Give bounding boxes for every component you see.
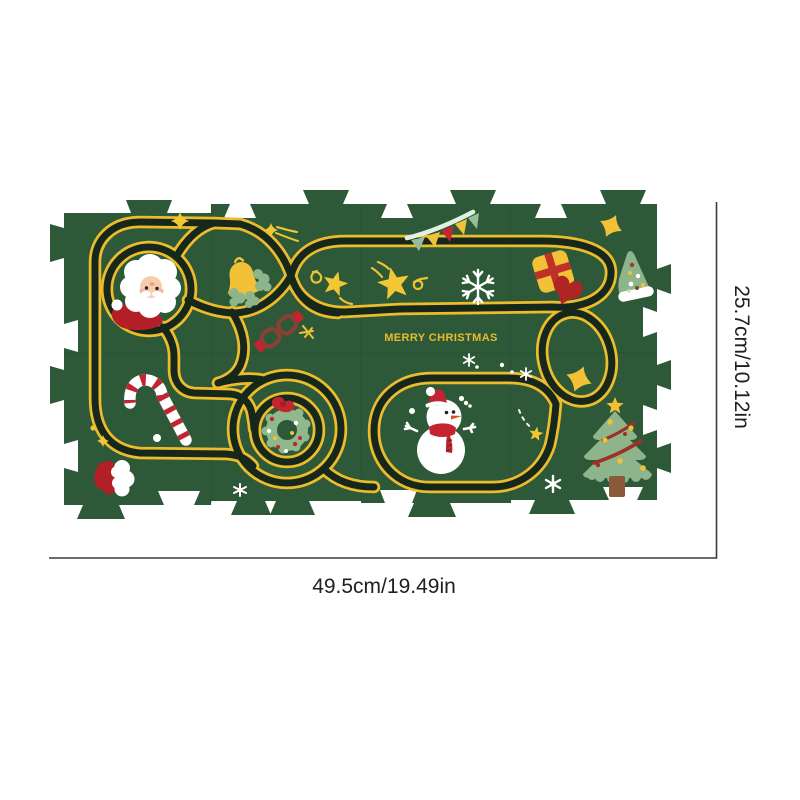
svg-text:25.7cm/10.12in: 25.7cm/10.12in <box>730 285 753 429</box>
svg-text:MERRY CHRISTMAS: MERRY CHRISTMAS <box>384 332 498 344</box>
svg-text:49.5cm/19.49in: 49.5cm/19.49in <box>312 575 456 598</box>
